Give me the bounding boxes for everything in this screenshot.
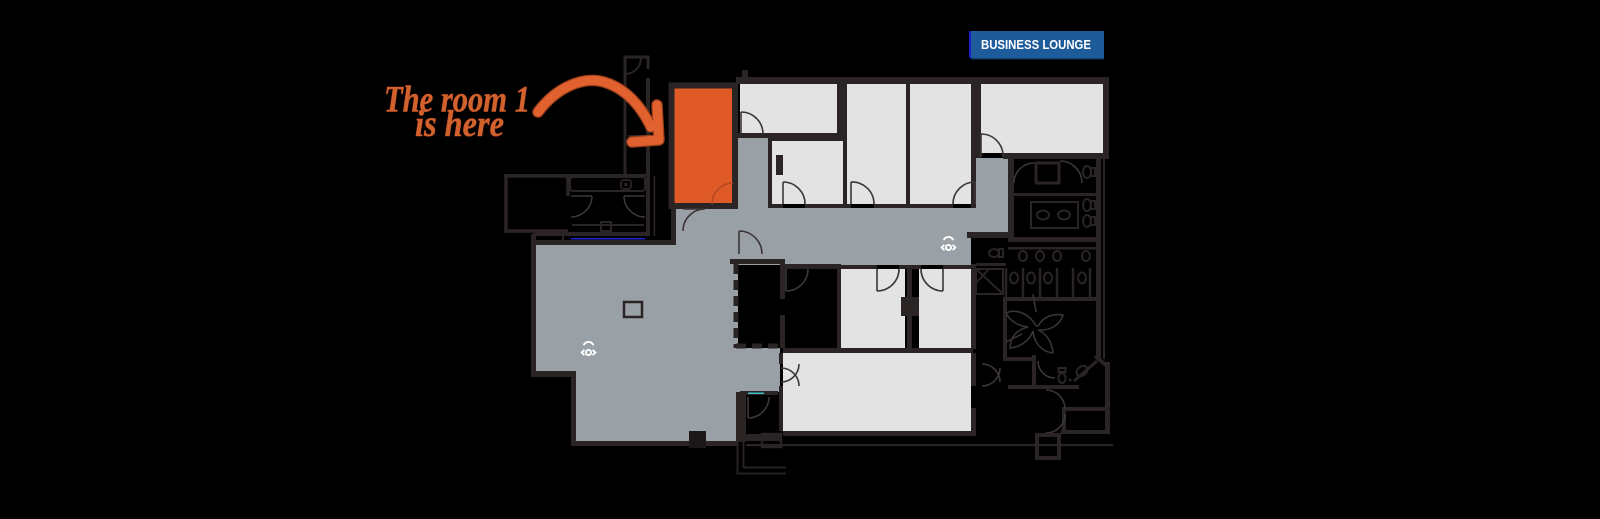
svg-text:is here: is here bbox=[415, 104, 504, 145]
svg-text:BUSINESS LOUNGE: BUSINESS LOUNGE bbox=[981, 38, 1091, 52]
